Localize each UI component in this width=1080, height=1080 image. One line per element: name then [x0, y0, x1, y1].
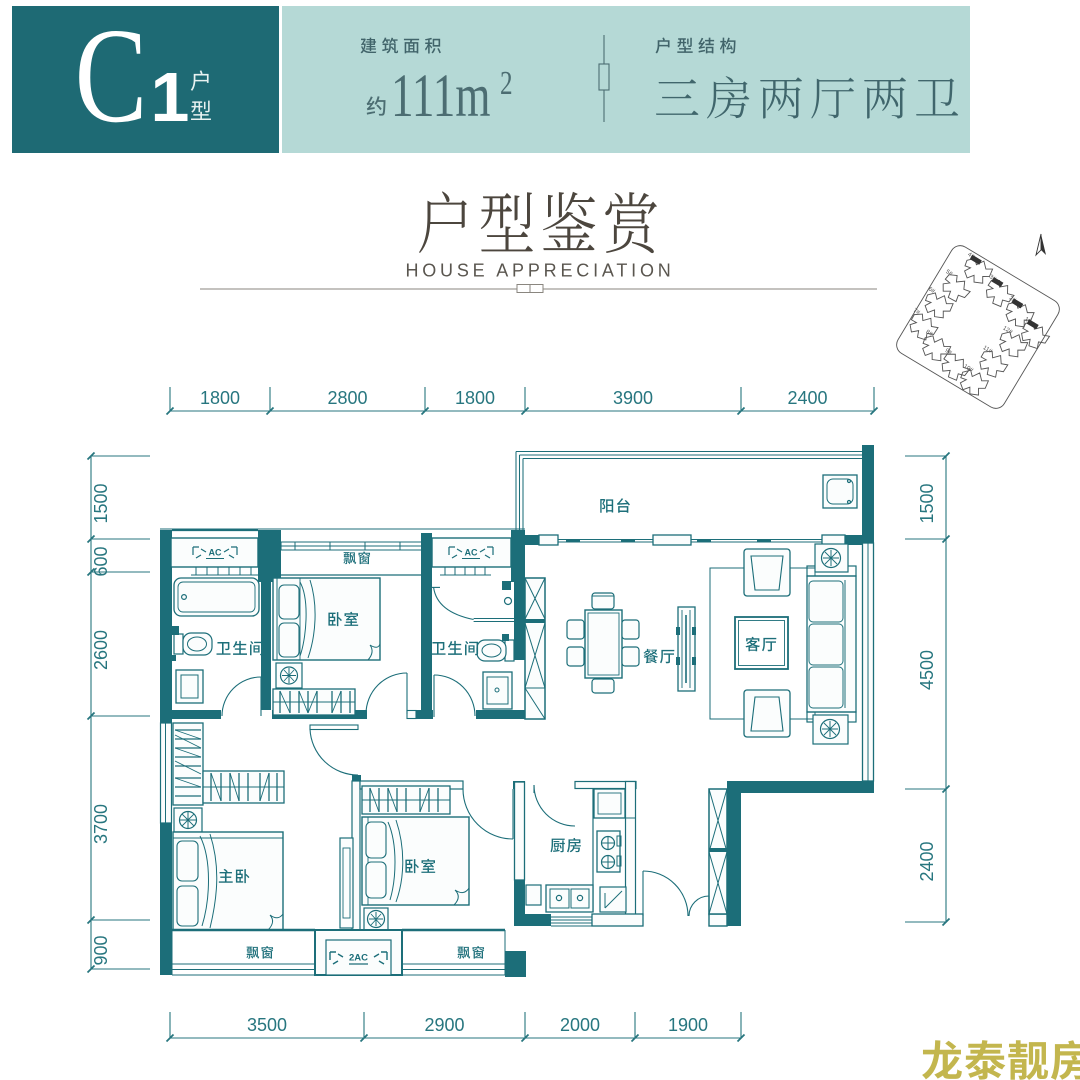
svg-text:1900: 1900 — [668, 1015, 708, 1035]
svg-text:2AC: 2AC — [349, 953, 368, 964]
svg-text:600: 600 — [91, 546, 111, 576]
svg-text:C: C — [75, 0, 148, 151]
svg-text:1500: 1500 — [91, 483, 111, 523]
svg-text:1800: 1800 — [200, 388, 240, 408]
svg-text:3900: 3900 — [613, 388, 653, 408]
svg-text:2000: 2000 — [560, 1015, 600, 1035]
svg-text:1500: 1500 — [917, 483, 937, 523]
svg-text:111m: 111m — [391, 61, 490, 129]
svg-text:AC: AC — [209, 548, 222, 558]
svg-text:HOUSE APPRECIATION: HOUSE APPRECIATION — [405, 261, 674, 281]
svg-text:3500: 3500 — [247, 1015, 287, 1035]
svg-text:4500: 4500 — [917, 650, 937, 690]
svg-text:3700: 3700 — [91, 804, 111, 844]
svg-text:2800: 2800 — [327, 388, 367, 408]
svg-text:1800: 1800 — [455, 388, 495, 408]
svg-text:AC: AC — [465, 548, 478, 558]
svg-text:2400: 2400 — [787, 388, 827, 408]
svg-text:2400: 2400 — [917, 841, 937, 881]
svg-text:1: 1 — [151, 58, 190, 136]
svg-text:2600: 2600 — [91, 630, 111, 670]
svg-text:2: 2 — [500, 64, 513, 102]
svg-text:2900: 2900 — [424, 1015, 464, 1035]
svg-text:900: 900 — [91, 935, 111, 965]
